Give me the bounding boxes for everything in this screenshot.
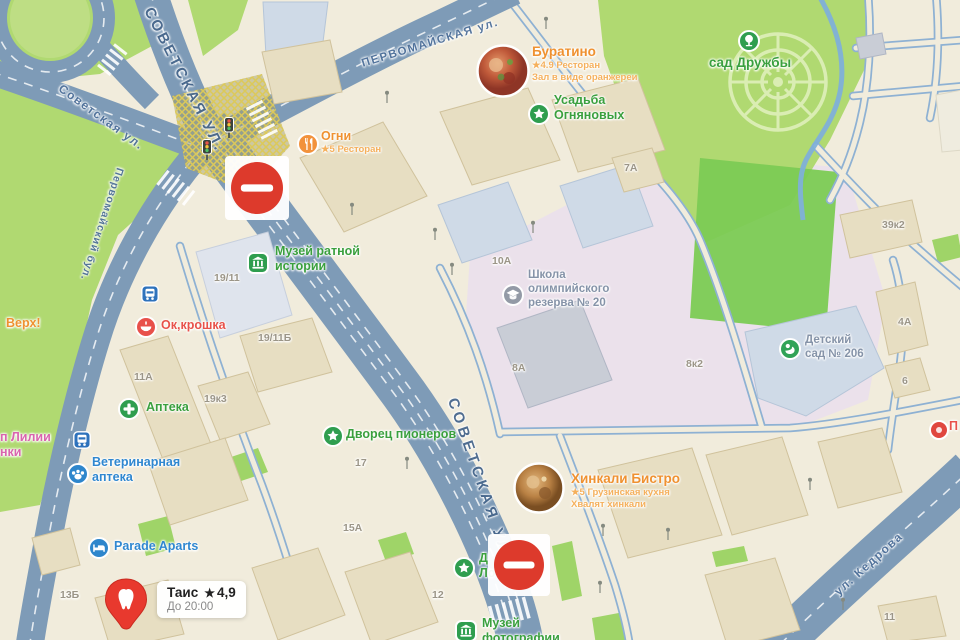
map-canvas[interactable]: СОВЕТСКАЯ УЛ.Советская ул.ПЕРВОМАЙСКАЯ у… <box>0 0 960 640</box>
garden-circles <box>730 34 826 130</box>
map-base-tiles <box>0 0 960 640</box>
